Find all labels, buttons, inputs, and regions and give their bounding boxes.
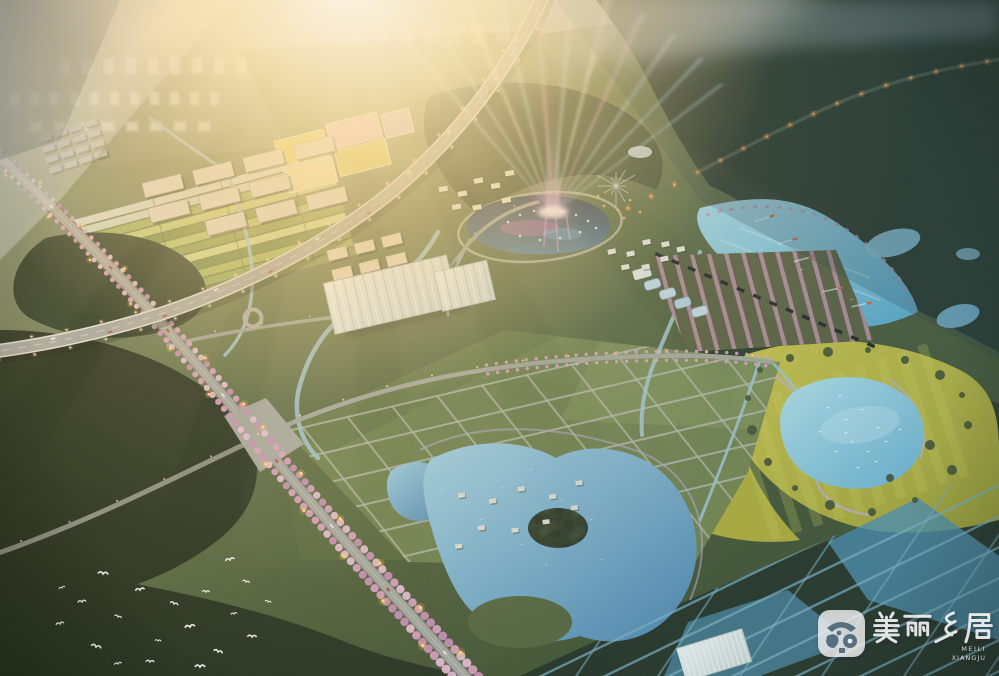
atmosphere [0, 0, 999, 676]
masterplan-rendering: 美丽乡居 MEILI XIANGJU [0, 0, 999, 676]
watermark-pinyin-1: MEILI [961, 645, 986, 653]
film-grain [0, 0, 999, 676]
meili-xiangju-logo-icon [818, 610, 865, 657]
aerial-scene: 美丽乡居 MEILI XIANGJU [0, 0, 999, 676]
watermark-pinyin-2: XIANGJU [952, 654, 986, 662]
